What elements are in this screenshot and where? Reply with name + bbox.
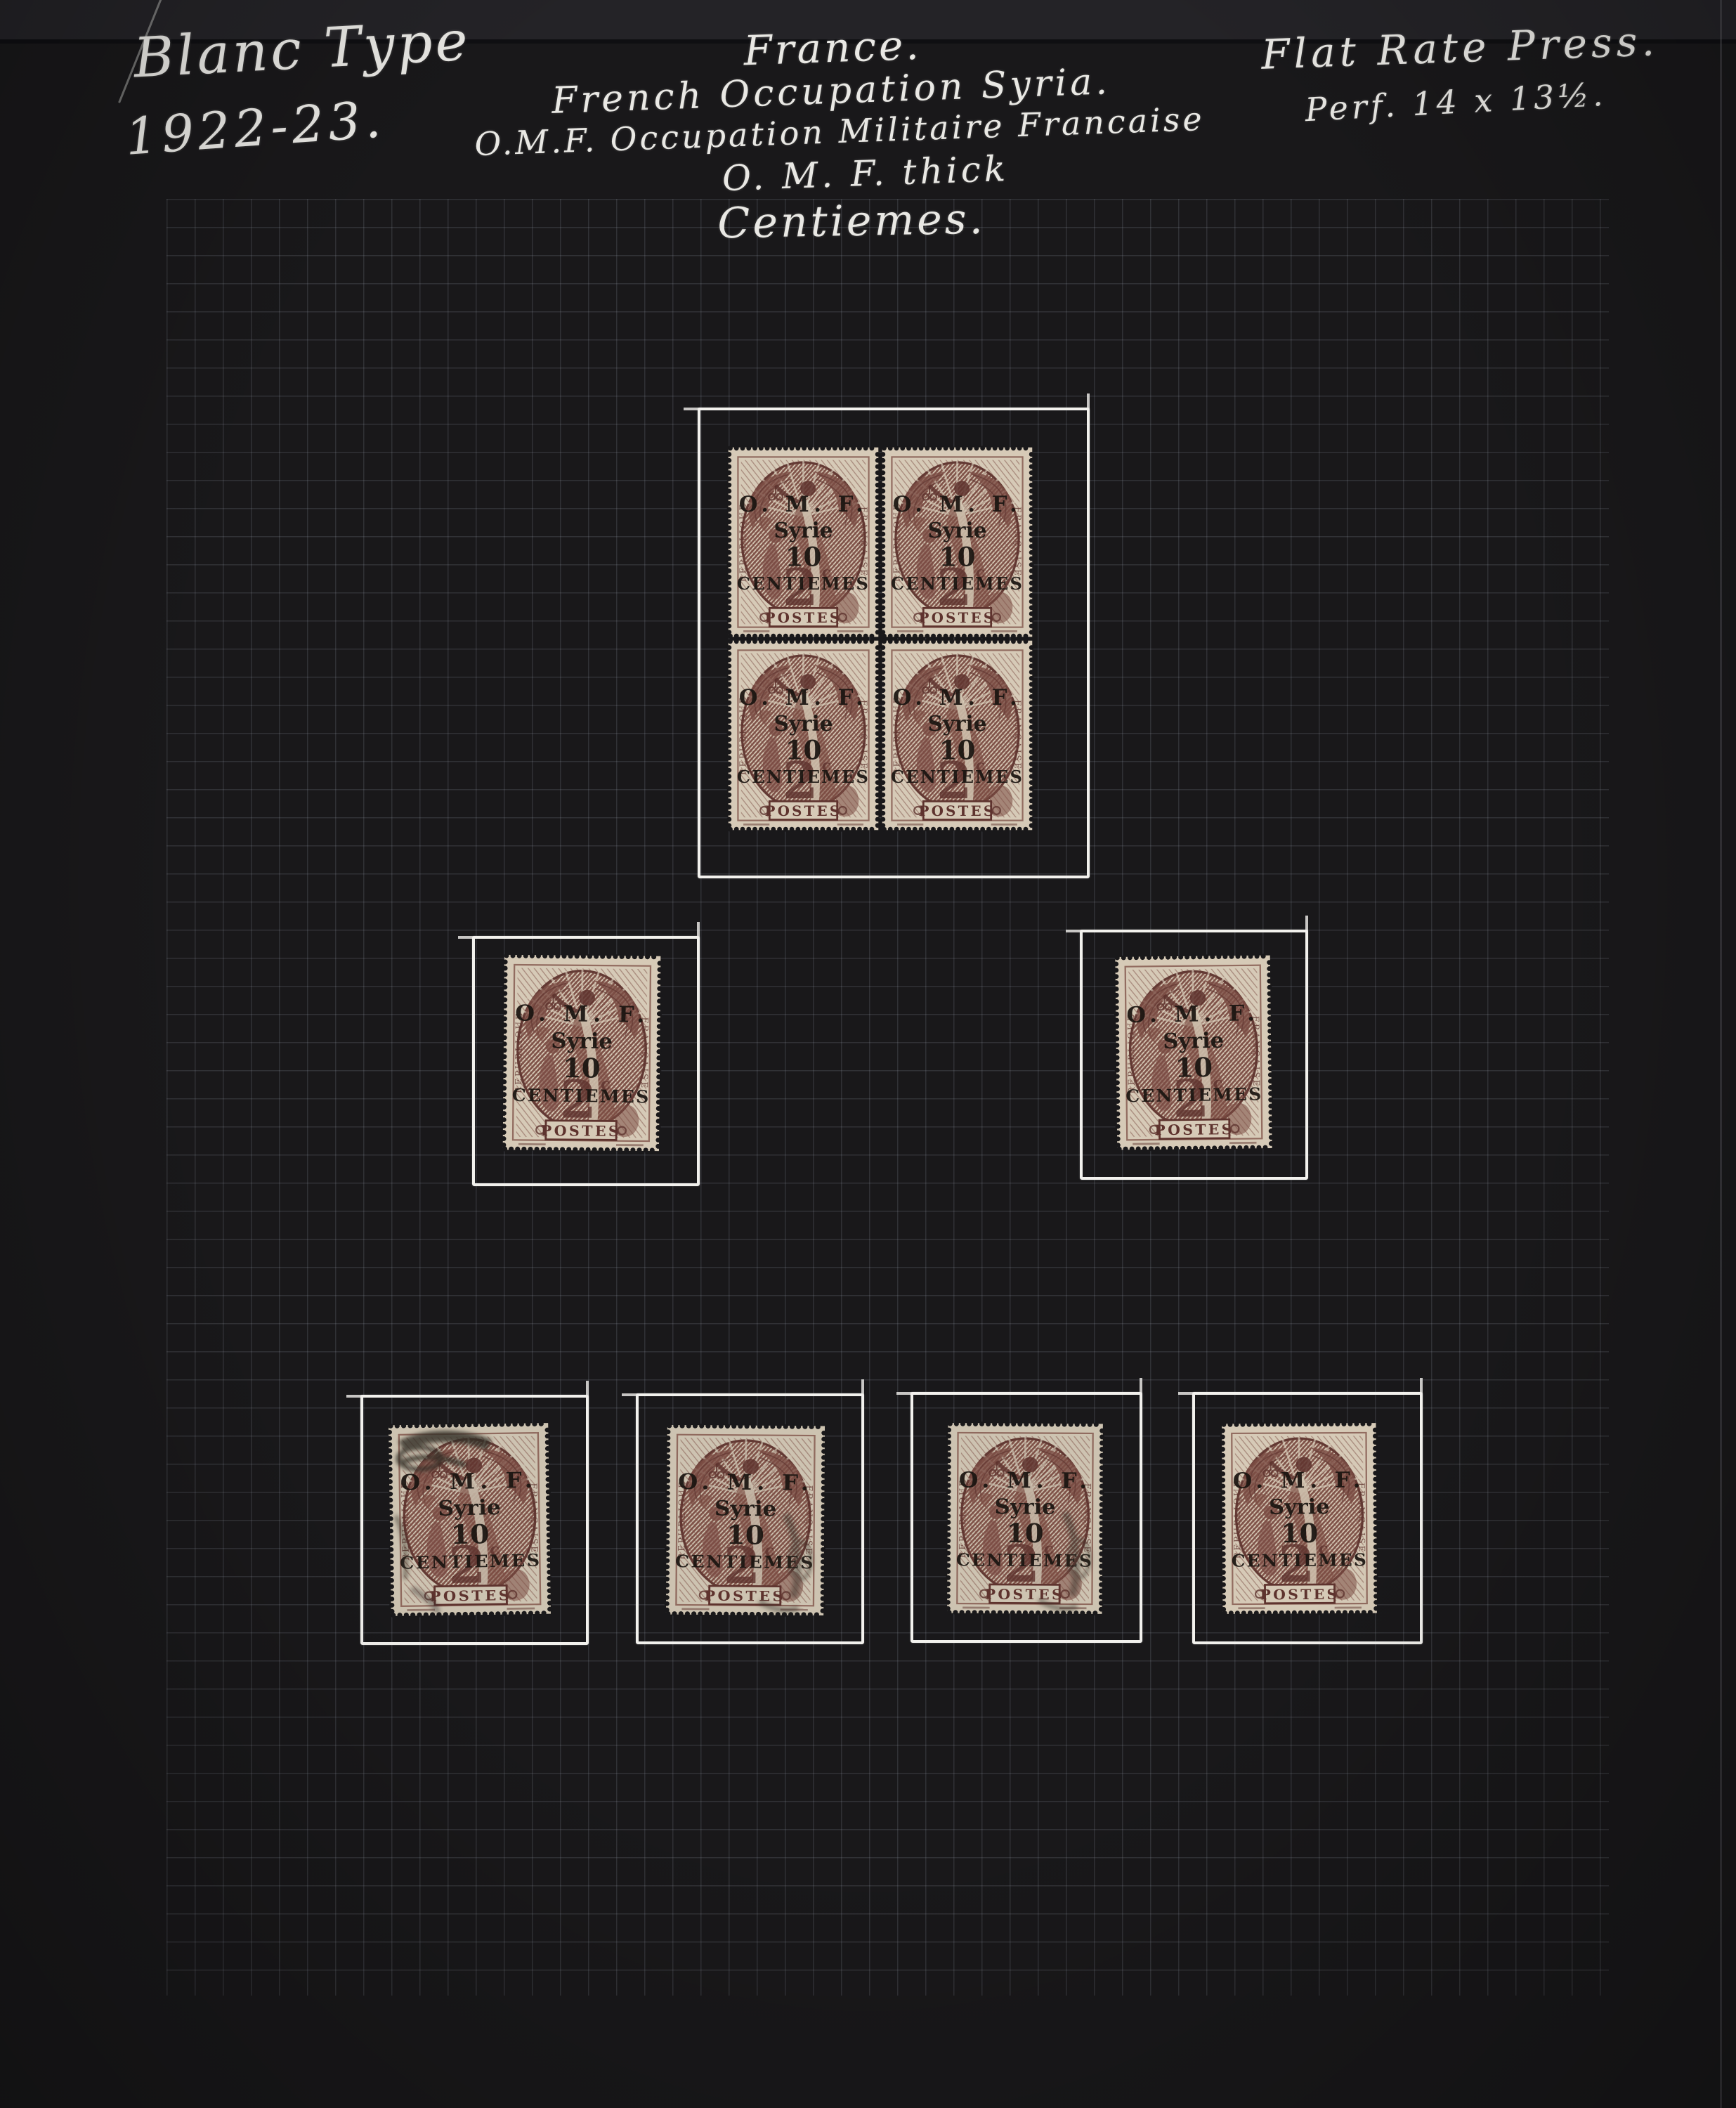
stamp-used-2: 2 c REPUBLIQUE FRANÇAISE POSTES O. M. F.…	[664, 1423, 827, 1618]
svg-text:O. M. F.: O. M. F.	[739, 492, 868, 517]
svg-text:POSTES: POSTES	[919, 610, 996, 626]
svg-text:10: 10	[939, 541, 976, 572]
stamp-used-3: 2 c REPUBLIQUE FRANÇAISE POSTES O. M. F.…	[945, 1421, 1104, 1615]
stamp-single-mint-left: 2 c REPUBLIQUE FRANÇAISE POSTES O. M. F.…	[501, 953, 663, 1153]
svg-text:O. M. F.: O. M. F.	[893, 492, 1022, 517]
svg-text:O. M. F.: O. M. F.	[678, 1470, 814, 1496]
svg-text:POSTES: POSTES	[919, 803, 996, 819]
svg-text:Syrie: Syrie	[1163, 1029, 1224, 1054]
svg-text:O. M. F.: O. M. F.	[515, 1001, 649, 1028]
svg-text:CENTIEMES: CENTIEMES	[737, 767, 870, 787]
svg-text:CENTIEMES: CENTIEMES	[512, 1085, 651, 1107]
svg-text:CENTIEMES: CENTIEMES	[1125, 1084, 1263, 1107]
svg-text:FRANÇAISE: FRANÇAISE	[1251, 1016, 1261, 1088]
svg-text:Syrie: Syrie	[927, 518, 986, 542]
svg-text:O. M. F.: O. M. F.	[400, 1467, 537, 1495]
svg-text:POSTES: POSTES	[765, 803, 842, 819]
svg-text:FRANÇAISE: FRANÇAISE	[528, 1483, 540, 1554]
stamps-layer: 2 c REPUBLIQUE FRANÇAISE POSTES O. M. F.…	[0, 0, 1736, 2108]
svg-text:Syrie: Syrie	[438, 1495, 501, 1521]
svg-text:10: 10	[1175, 1051, 1213, 1083]
svg-text:CENTIEMES: CENTIEMES	[737, 573, 870, 594]
stamp-used-4: 2 c REPUBLIQUE FRANÇAISE POSTES O. M. F.…	[1220, 1421, 1378, 1615]
svg-text:FRANÇAISE: FRANÇAISE	[1013, 507, 1023, 578]
svg-text:FRANÇAISE: FRANÇAISE	[639, 1017, 651, 1090]
heading-country: France.	[743, 21, 922, 75]
svg-text:Syrie: Syrie	[774, 518, 833, 542]
heading-centiemes: Centiemes.	[717, 195, 986, 249]
svg-text:10: 10	[1281, 1518, 1319, 1549]
stamp-block-top-right: 2 c REPUBLIQUE FRANÇAISE POSTES O. M. F.…	[880, 445, 1034, 639]
svg-text:FRANÇAISE: FRANÇAISE	[1357, 1483, 1367, 1554]
stamp-single-mint-right: 2 c REPUBLIQUE FRANÇAISE POSTES O. M. F.…	[1114, 954, 1274, 1152]
svg-text:O. M. F.: O. M. F.	[1233, 1468, 1366, 1494]
svg-text:CENTIEMES: CENTIEMES	[400, 1550, 542, 1573]
svg-text:POSTES: POSTES	[705, 1587, 785, 1604]
svg-text:POSTES: POSTES	[541, 1122, 622, 1140]
svg-text:Syrie: Syrie	[1269, 1495, 1330, 1519]
svg-text:CENTIEMES: CENTIEMES	[891, 573, 1024, 594]
stamp-used-1: 2 c REPUBLIQUE FRANÇAISE POSTES O. M. F.…	[386, 1421, 553, 1618]
svg-text:CENTIEMES: CENTIEMES	[891, 767, 1024, 787]
svg-text:10: 10	[726, 1519, 764, 1550]
svg-text:CENTIEMES: CENTIEMES	[1232, 1549, 1369, 1570]
svg-text:O. M. F.: O. M. F.	[739, 685, 868, 710]
svg-text:POSTES: POSTES	[985, 1586, 1064, 1603]
svg-text:10: 10	[785, 541, 822, 572]
svg-text:POSTES: POSTES	[765, 610, 842, 626]
svg-text:FRANÇAISE: FRANÇAISE	[859, 507, 869, 578]
svg-text:POSTES: POSTES	[429, 1587, 511, 1605]
svg-text:10: 10	[785, 734, 822, 765]
svg-text:Syrie: Syrie	[714, 1497, 777, 1521]
svg-text:Syrie: Syrie	[551, 1028, 613, 1054]
svg-text:POSTES: POSTES	[1260, 1586, 1340, 1603]
svg-text:FRANÇAISE: FRANÇAISE	[1013, 700, 1023, 771]
stamp-block-bottom-right: 2 c REPUBLIQUE FRANÇAISE POSTES O. M. F.…	[880, 639, 1034, 832]
svg-text:Syrie: Syrie	[774, 711, 833, 736]
svg-text:10: 10	[562, 1053, 601, 1084]
svg-text:O. M. F.: O. M. F.	[893, 685, 1022, 710]
stamp-block-top-left: 2 c REPUBLIQUE FRANÇAISE POSTES O. M. F.…	[726, 445, 880, 639]
svg-text:O. M. F.: O. M. F.	[1126, 1001, 1260, 1028]
svg-text:FRANÇAISE: FRANÇAISE	[859, 700, 869, 771]
svg-text:O. M. F.: O. M. F.	[959, 1468, 1092, 1494]
svg-text:Syrie: Syrie	[927, 711, 986, 736]
svg-text:Syrie: Syrie	[995, 1495, 1056, 1520]
svg-text:10: 10	[1006, 1517, 1044, 1549]
svg-text:10: 10	[450, 1519, 490, 1551]
stamp-block-bottom-left: 2 c REPUBLIQUE FRANÇAISE POSTES O. M. F.…	[726, 639, 880, 832]
svg-text:10: 10	[939, 734, 976, 765]
svg-text:POSTES: POSTES	[1154, 1121, 1234, 1138]
